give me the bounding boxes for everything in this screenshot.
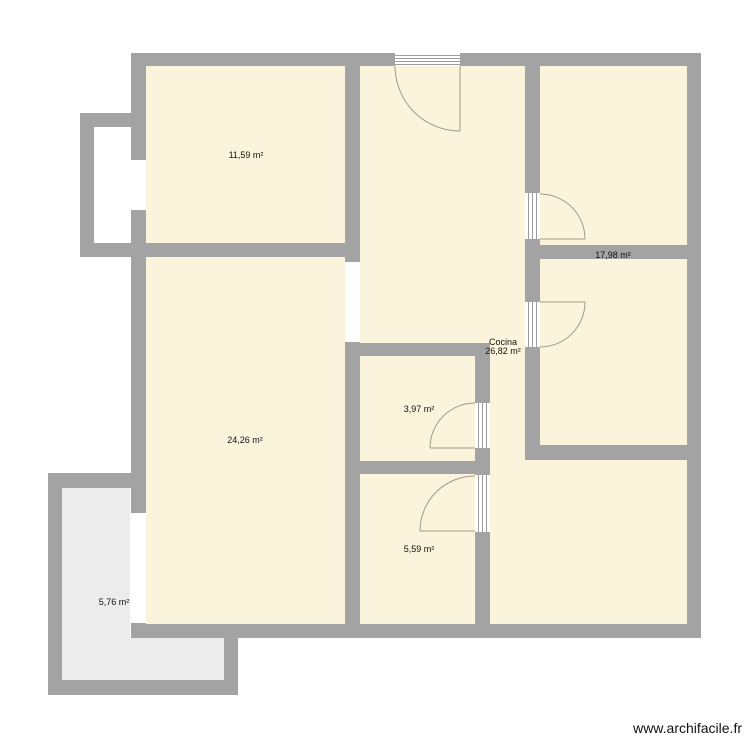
wall-outer-bottom[interactable]: [131, 624, 701, 638]
balcony-interior[interactable]: [94, 127, 132, 243]
wall-terrace-bottom[interactable]: [48, 680, 238, 695]
archifacile-watermark: www.archifacile.fr: [633, 720, 742, 736]
wall-room397-bottom[interactable]: [345, 461, 490, 474]
opening-terrace[interactable]: [131, 513, 146, 623]
opening-passage-corridor[interactable]: [345, 262, 360, 342]
room-label-5-76[interactable]: 5,76 m²: [99, 597, 130, 607]
room-label-3-97[interactable]: 3,97 m²: [404, 404, 435, 414]
room-label-5-59[interactable]: 5,59 m²: [404, 544, 435, 554]
room-label-cocina[interactable]: Cocina 26,82 m²: [485, 338, 521, 356]
door-middleright-room[interactable]: [525, 302, 540, 347]
room-label-17-98[interactable]: 17,98 m²: [595, 250, 631, 260]
wall-terrace-left[interactable]: [48, 473, 62, 695]
wall-divider-upper-left[interactable]: [80, 243, 360, 257]
wall-right-vertical[interactable]: [525, 53, 540, 460]
wall-middleright-bottom[interactable]: [525, 445, 687, 460]
floor-plan-canvas[interactable]: 11,59 m² 17,98 m² Cocina 26,82 m² 3,97 m…: [0, 0, 750, 750]
door-entry[interactable]: [395, 53, 460, 66]
door-room1798[interactable]: [525, 193, 540, 239]
window-balcony[interactable]: [131, 160, 146, 210]
wall-outer-right[interactable]: [687, 53, 701, 638]
wall-room397-top[interactable]: [345, 343, 490, 356]
wall-terrace-right[interactable]: [224, 638, 238, 695]
door-room397[interactable]: [475, 403, 490, 448]
room-label-24-26[interactable]: 24,26 m²: [227, 435, 263, 445]
room-area-cocina: 26,82 m²: [485, 347, 521, 356]
room-label-11-59[interactable]: 11,59 m²: [229, 150, 264, 160]
wall-balcony-left[interactable]: [80, 113, 94, 257]
door-room559[interactable]: [475, 475, 490, 532]
terrace-interior-lower[interactable]: [62, 638, 224, 680]
